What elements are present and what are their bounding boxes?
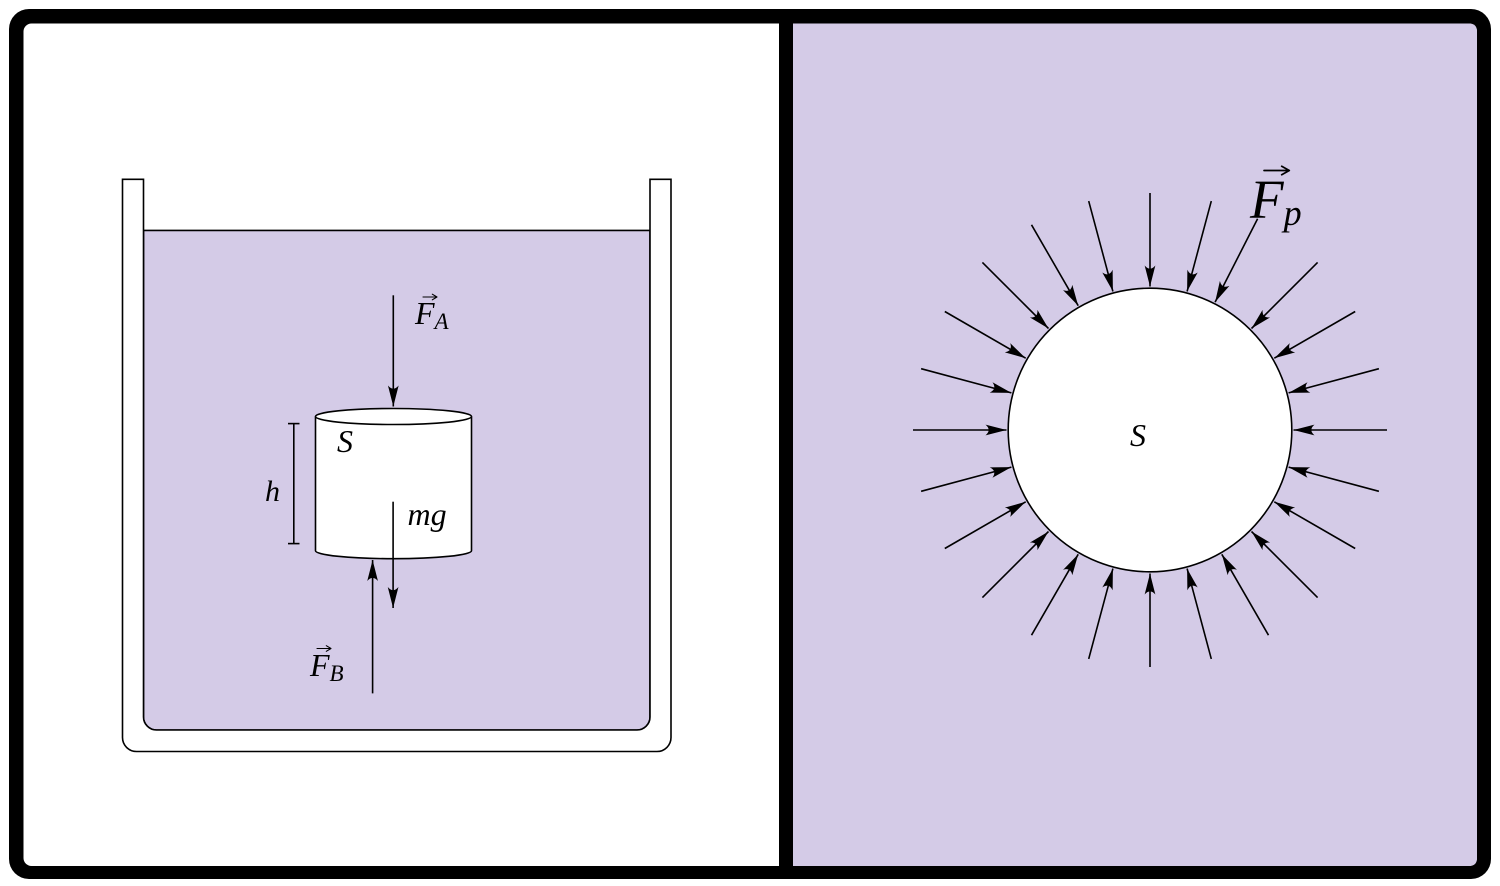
svg-text:S: S xyxy=(337,423,353,459)
svg-text:h: h xyxy=(265,475,280,508)
svg-text:mg: mg xyxy=(408,496,447,532)
svg-text:S: S xyxy=(1130,417,1146,453)
